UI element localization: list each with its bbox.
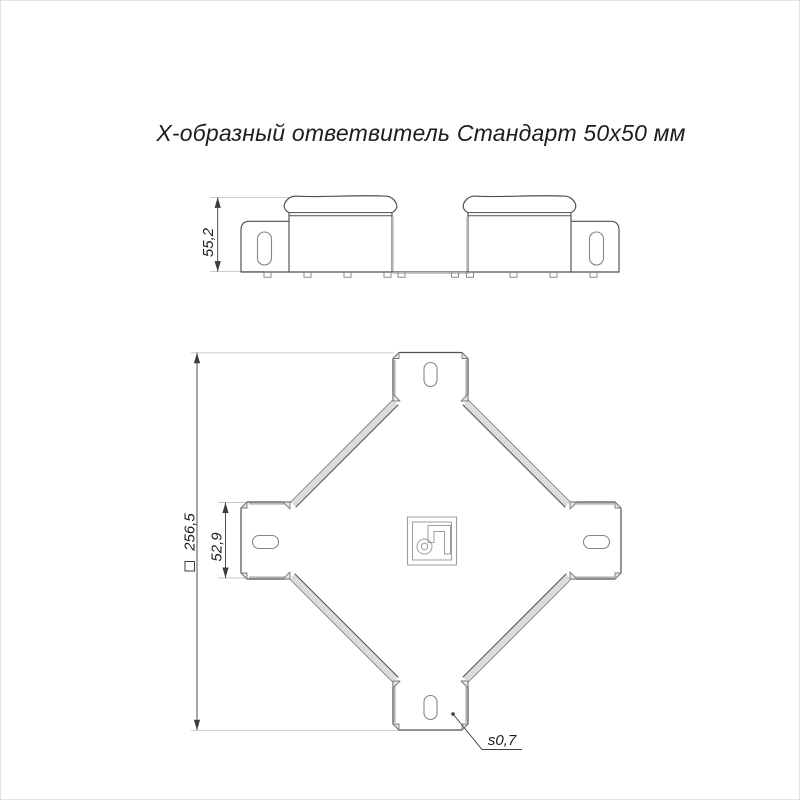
thickness-note-label: s0,7 — [488, 732, 517, 749]
side-view: 55,2 — [200, 196, 619, 278]
plan-arm-width-dimension: 52,9 — [209, 503, 229, 579]
technical-drawing: Х-образный ответвитель Стандарт 50х50 мм… — [1, 1, 799, 799]
side-right-slot — [590, 232, 604, 265]
square-symbol-icon — [185, 562, 195, 572]
side-connector-right — [463, 196, 576, 272]
plan-overall-dimension: 256,5 — [182, 353, 201, 731]
side-height-dim-label: 55,2 — [200, 227, 217, 257]
plan-outline — [241, 353, 621, 731]
side-height-dimension: 55,2 — [200, 197, 292, 271]
side-left-slot — [258, 232, 272, 265]
plan-overall-dim-label: 256,5 — [182, 513, 199, 552]
plan-view: 256,5 52,9 s0,7 — [182, 353, 622, 750]
plan-arm-width-dim-label: 52,9 — [209, 532, 226, 562]
drawing-title: Х-образный ответвитель Стандарт 50х50 мм — [155, 120, 685, 146]
drawing-page: Х-образный ответвитель Стандарт 50х50 мм… — [0, 0, 800, 800]
side-connector-left — [284, 196, 397, 272]
side-left-tab — [241, 221, 289, 272]
